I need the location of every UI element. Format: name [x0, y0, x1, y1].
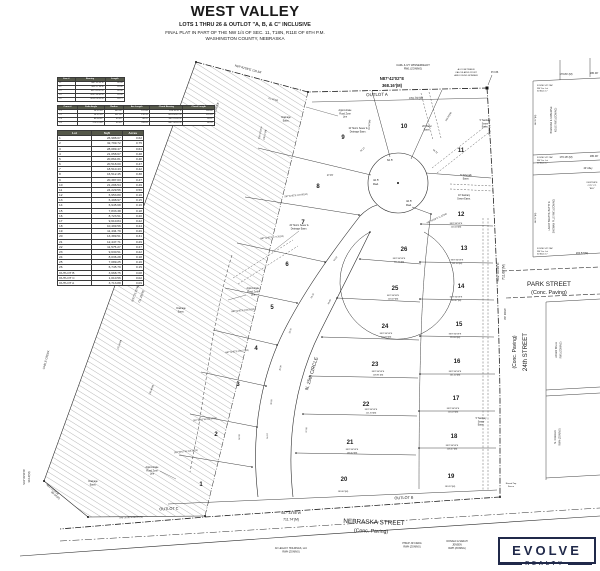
- map-label: LOREN WILLE: [555, 342, 558, 358]
- evolve-realty-logo: EVOLVE: [498, 537, 596, 564]
- map-label: 163.06'(M): [445, 112, 452, 122]
- map-label: 51.24': [267, 433, 269, 439]
- map-label: Line: [150, 474, 155, 476]
- map-label: 37.96': [306, 427, 309, 433]
- map-label: 142.37'(M): [535, 115, 537, 126]
- map-label: 200.57'(M): [576, 251, 588, 255]
- map-label: P.O.B.: [491, 70, 499, 74]
- map-label: 20' Storm Sewer &: [289, 224, 309, 227]
- map-label: AND FOUND SPINNER: [454, 74, 478, 77]
- map-label: 10' Storm Sewer &: [348, 127, 368, 130]
- curve-table: Curve #Delta AngleRadiusArc LengthChord …: [57, 105, 215, 126]
- map-label: Easm.: [90, 485, 97, 487]
- lot-number: 25: [392, 286, 399, 292]
- map-label: Round Top: [506, 483, 517, 485]
- map-label: 160.00'(M): [489, 124, 492, 135]
- lot-number: 18: [451, 434, 458, 440]
- map-label: KOLIE RW1 (ZONING): [555, 108, 558, 133]
- table-row: OUTLOT A3,713.880.09: [58, 280, 144, 285]
- logo-divider-right: [568, 564, 592, 565]
- map-label: N. 25th CIRCLE: [304, 356, 320, 391]
- map-label: OUTLOT B: [394, 496, 414, 501]
- map-label: N87°42'02"E: [380, 76, 405, 81]
- map-label: 5' Sanitary: [480, 119, 492, 122]
- map-label: 176.18' (M): [559, 155, 572, 159]
- map-label: N87°30'59"E: [451, 260, 464, 262]
- cell: 0.09: [122, 280, 143, 285]
- map-label: PARK STREET: [527, 281, 571, 288]
- map-label: 368.16'(M): [382, 83, 403, 88]
- map-label: 56.31': [432, 149, 438, 155]
- table-row: C4270°15'58"62.50'294.82'N47°34'55"W88.3…: [58, 121, 215, 125]
- map-label: 10' Sanitary: [458, 194, 471, 197]
- map-label: N87°30'59"E: [393, 258, 406, 260]
- map-label: Rad.: [406, 203, 412, 207]
- map-label: SHEWAN PLLE RW1 (ZONING): [553, 199, 556, 234]
- map-label: CALCULATED POINT: [455, 71, 477, 74]
- cell: N47°34'55"W: [150, 121, 183, 125]
- map-label: N87°30'59"E: [450, 223, 463, 225]
- map-label: Drainage Easm.: [291, 227, 308, 230]
- map-label: "BLD": [589, 188, 595, 190]
- map-label: 5' Sanitary: [476, 417, 488, 420]
- map-label: Drainage: [281, 116, 291, 119]
- map-label: Drainage Easm.: [350, 130, 367, 133]
- lot-number: 19: [448, 474, 455, 480]
- map-label: BRENDAN & KOBERINE: [550, 106, 553, 133]
- map-label: 124.00'(M): [450, 337, 461, 339]
- map-label: 30.65': [328, 299, 333, 305]
- lot-number: 20: [341, 477, 348, 483]
- map-label: LARRY BRETTS, BETTY &: [548, 201, 551, 231]
- n25th-circle-east-row: [291, 232, 370, 497]
- lot-number: 8: [316, 184, 320, 190]
- logo-divider-left: [498, 564, 522, 565]
- logo-subtitle: REALTY: [498, 561, 592, 567]
- map-label: Approximate: [247, 287, 261, 290]
- map-label: 103.07'(M): [388, 298, 399, 300]
- lot-number: 22: [363, 402, 370, 408]
- map-label: 104.78'(M): [381, 336, 392, 338]
- lot-number: 21: [347, 440, 354, 446]
- map-label: N87°30'59"E: [372, 371, 385, 373]
- cell: L5: [58, 97, 76, 101]
- map-label: Flood Zone: [146, 470, 158, 472]
- map-label: Easm.: [482, 127, 489, 129]
- map-label: 39.14'(M): [27, 471, 31, 482]
- map-label: RW Cor. Lot: [537, 159, 548, 162]
- lot-number: 23: [372, 362, 379, 368]
- map-label: 35.06': [279, 364, 282, 371]
- map-label: (Conc. Paving): [354, 528, 389, 535]
- map-label: RWH (ZONING): [282, 551, 299, 554]
- lot-number: 24: [382, 324, 389, 330]
- map-label: Line: [251, 295, 256, 297]
- map-label: (Conc. Paving): [512, 335, 518, 368]
- lot-number: 16: [454, 359, 461, 365]
- map-label: N87°30'59"E: [365, 409, 378, 411]
- map-label: 30.00': [271, 398, 274, 404]
- map-label: Sewer: [478, 420, 485, 423]
- lot-number: 6: [285, 262, 289, 268]
- map-label: Fence: [508, 486, 515, 488]
- lot-number: 5: [270, 305, 274, 311]
- map-label: RWH (ZONING): [448, 547, 465, 550]
- map-label: 62.5': [387, 158, 393, 162]
- map-label: Drainage: [176, 307, 186, 310]
- map-label: Approximate: [339, 109, 353, 112]
- map-label: Flood Zone: [339, 113, 351, 115]
- map-label: 476.76'(M): [409, 96, 423, 100]
- map-label: Rad.: [373, 182, 379, 186]
- lot-number: 26: [401, 247, 408, 253]
- map-label: 122.42'(M): [369, 119, 372, 130]
- plat-document-page: WEST VALLEY LOTS 1 THRU 26 & OUTLOT "A, …: [0, 0, 600, 571]
- map-label: Easm.: [478, 425, 485, 427]
- map-label: Easm.: [463, 178, 470, 180]
- map-label: N87°30'59"E: [446, 445, 459, 447]
- lot-number: 3: [236, 382, 240, 388]
- map-label: 30 Block 17: [537, 163, 548, 165]
- map-label: Line: [343, 117, 348, 119]
- map-label: 183.22'(M): [445, 486, 456, 488]
- lot-number: 11: [458, 148, 465, 154]
- map-label: Approximate: [146, 466, 160, 469]
- lot-number: 9: [341, 135, 345, 141]
- map-label: 103.67'(M): [451, 300, 462, 302]
- map-label: N87°30'59"E: [380, 333, 393, 335]
- cell: C4: [58, 121, 78, 125]
- map-label: 176.84' (M): [559, 72, 572, 76]
- map-label: N87°42'05"E 120.84': [234, 64, 262, 75]
- map-label: CARL & IVY WINNERFELDT: [396, 63, 430, 67]
- map-label: N87°30'59"E: [447, 408, 460, 410]
- map-label: 17.15': [327, 174, 334, 177]
- map-label: Sewer Easm.: [457, 197, 471, 200]
- map-label: S87°30'59"E: [387, 295, 400, 297]
- map-label: 25.32': [311, 293, 316, 299]
- lot-number: 14: [458, 284, 465, 290]
- map-label: Sewer: [482, 122, 489, 125]
- map-label: 54.27': [360, 147, 366, 153]
- map-label: 52.76': [239, 434, 241, 440]
- map-label: 30 Block 17: [537, 91, 548, 93]
- map-label: N87°30'59"E: [449, 371, 462, 373]
- map-label: RWH (ZONING): [403, 546, 420, 549]
- map-label: RW Cor. Lot: [537, 250, 548, 253]
- cell: OUTLOT A: [58, 280, 92, 285]
- map-label: CABLE CREEK: [42, 350, 51, 370]
- map-label: (Conc. Paving): [531, 290, 567, 296]
- lot-area-table: LotSqftAcres126,988.070.62232,799.720.75…: [57, 130, 144, 286]
- map-label: 142.37'(M): [535, 213, 537, 224]
- lot-number: 17: [453, 396, 460, 402]
- map-label: N02°33'30"W: [22, 469, 26, 485]
- map-label: 32.76': [289, 327, 293, 334]
- map-label: 80' ROW: [503, 308, 507, 320]
- map-label: 180.00': [590, 154, 599, 158]
- lot-number: 10: [401, 124, 408, 130]
- map-label: 108.91'(M): [373, 374, 384, 376]
- map-label: S02°33'56"E: [496, 262, 500, 282]
- pob-leader: [488, 75, 492, 85]
- map-label: RW1 (ZONING): [560, 341, 563, 358]
- neighbor-parcels: [533, 58, 600, 480]
- cell: 62.50': [105, 121, 124, 125]
- map-label: S40°30'58"W 86.97'(M): [119, 517, 143, 520]
- map-label: 106.47'(M): [447, 448, 458, 450]
- map-label: 711.74'(M): [283, 518, 299, 522]
- table-row: L5N53°23'26"W24.71': [58, 97, 125, 101]
- map-label: 24th STREET: [522, 333, 529, 371]
- map-label: OUTLOT C: [159, 507, 179, 512]
- logo-sub-text: REALTY: [525, 561, 565, 567]
- map-label: 711.60'(M): [502, 264, 506, 280]
- map-label: 5' Sidewalk: [460, 175, 472, 177]
- map-label: 136.42'(M): [347, 452, 358, 454]
- map-label: FOUND 5/8" CAP: [537, 156, 553, 159]
- map-label: 20' Alley: [584, 167, 594, 170]
- cell: N53°23'26"W: [75, 97, 105, 101]
- map-label: Flood Zone: [247, 291, 259, 293]
- lot-number: 12: [458, 212, 465, 218]
- map-label: FOUND 5/8" CAP: [537, 84, 553, 87]
- cell: 88.39': [183, 121, 215, 125]
- map-label: N87°30'58"E 11.03'(M): [427, 213, 448, 224]
- map-label: N87°30'59"E: [450, 297, 463, 299]
- map-label: 20' Water: [422, 125, 432, 128]
- cell: 3,713.88: [92, 280, 123, 285]
- map-label: 141.02'(M): [450, 374, 461, 376]
- map-label: S87°42'02"E 187.60'(M): [284, 194, 308, 198]
- map-label: RW1 (ZONING): [404, 67, 422, 71]
- map-label: 104.29'(M): [448, 411, 459, 413]
- map-label: 114.58'(M): [394, 261, 404, 263]
- map-label: M. KREGER: [554, 430, 557, 444]
- map-label: RWH (ZONING): [559, 428, 562, 445]
- map-label: Easm.: [424, 129, 431, 131]
- map-label: 100.00'(M): [451, 226, 462, 228]
- map-label: CITY CT.: [588, 185, 597, 187]
- map-label: FOUND 5/8" CAP: [537, 247, 553, 250]
- map-label: 101.00'(M): [452, 263, 463, 265]
- map-label: Easm.: [283, 121, 290, 123]
- map-label: Drainage: [88, 480, 98, 483]
- logo-word: EVOLVE: [512, 543, 582, 558]
- lot-number: 13: [461, 246, 468, 252]
- map-label: 30 Block 17: [537, 254, 548, 256]
- cell: 270°15'58": [78, 121, 105, 125]
- map-label: NEBRASKA STREET: [343, 518, 405, 527]
- map-label: 121.33'(M): [366, 412, 377, 414]
- lot-number: 15: [456, 322, 463, 328]
- lot-number: 4: [254, 346, 258, 352]
- map-label: S87°33'56"W: [281, 511, 302, 515]
- map-label: OUTLOT A: [366, 92, 388, 97]
- map-label: N87°30'59"E: [346, 449, 359, 451]
- map-label: 54.50': [333, 256, 338, 262]
- map-label: RW Cor. Lot: [537, 87, 548, 90]
- map-label: Easm.: [178, 312, 185, 314]
- map-label: 180.00': [590, 71, 599, 75]
- map-label: A 0.5' BETWEEN: [458, 68, 475, 71]
- cell: 24.71': [105, 97, 124, 101]
- pob-marker: [486, 87, 489, 90]
- map-label: 183.62'(M): [338, 491, 349, 493]
- map-label: DEXTER'S: [587, 182, 598, 184]
- cell: 294.82': [123, 121, 149, 125]
- map-label: N87°30'59"E: [449, 334, 462, 336]
- line-table: Line #BearingLengthL1N87°42'02"E35.00'L2…: [57, 77, 125, 102]
